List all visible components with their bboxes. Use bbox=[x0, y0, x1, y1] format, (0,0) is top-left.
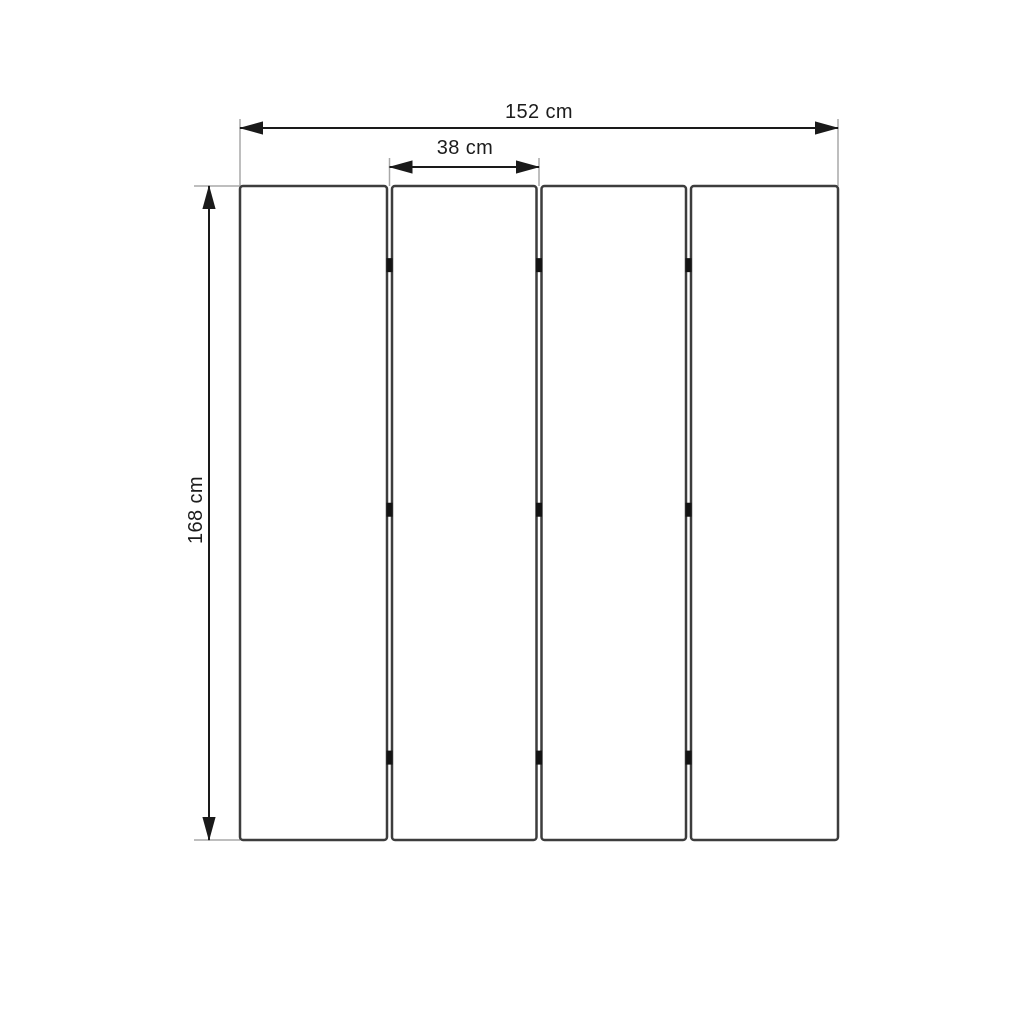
canvas: 152 cm 38 cm 168 cm bbox=[0, 0, 1024, 1024]
dimension-label-total-width: 152 cm bbox=[439, 99, 639, 125]
hinge-mark bbox=[686, 258, 692, 272]
hinge-mark bbox=[387, 751, 393, 765]
hinge-mark bbox=[387, 258, 393, 272]
panel-1 bbox=[240, 186, 387, 840]
hinge-mark bbox=[686, 751, 692, 765]
hinge-mark bbox=[536, 751, 542, 765]
hinge-mark bbox=[536, 503, 542, 517]
hinge-mark bbox=[387, 503, 393, 517]
dimension-label-panel-width: 38 cm bbox=[365, 135, 565, 161]
panel-2 bbox=[392, 186, 537, 840]
panel-3 bbox=[542, 186, 687, 840]
hinge-mark bbox=[536, 258, 542, 272]
panel-4 bbox=[691, 186, 838, 840]
dimension-label-height: 168 cm bbox=[183, 410, 209, 610]
hinge-mark bbox=[686, 503, 692, 517]
